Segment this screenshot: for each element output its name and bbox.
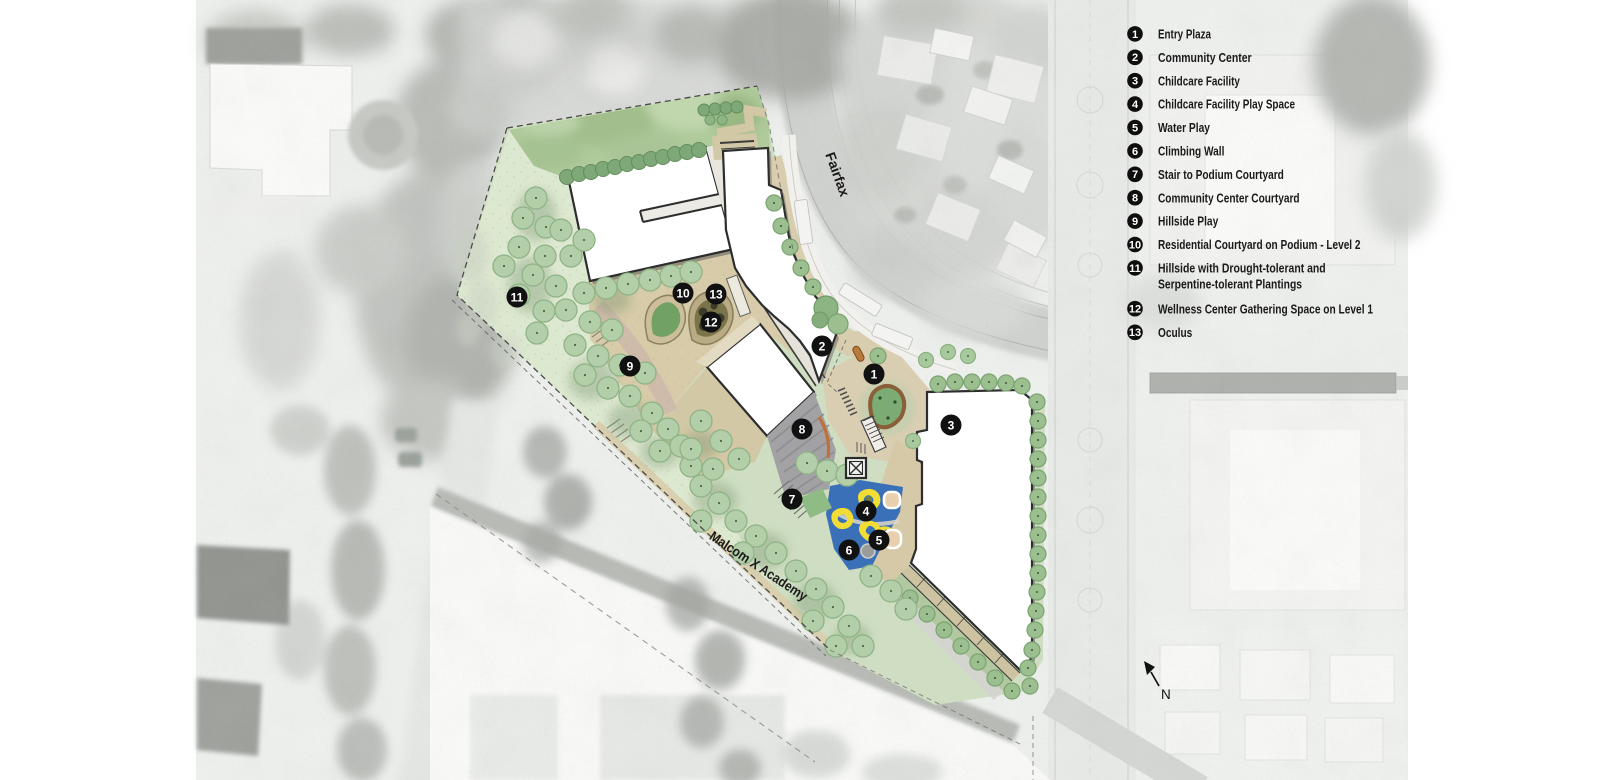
svg-text:7: 7 (1132, 169, 1138, 181)
svg-text:4: 4 (863, 505, 870, 519)
svg-text:10: 10 (676, 287, 690, 301)
svg-text:Residential Courtyard on Podiu: Residential Courtyard on Podium - Level … (1158, 237, 1361, 252)
svg-text:12: 12 (704, 316, 718, 330)
svg-text:9: 9 (627, 360, 634, 374)
svg-text:6: 6 (846, 544, 853, 558)
svg-text:1: 1 (1132, 29, 1138, 41)
svg-text:10: 10 (1129, 239, 1141, 251)
svg-text:Community Center: Community Center (1158, 50, 1252, 65)
svg-text:Childcare Facility: Childcare Facility (1158, 73, 1241, 88)
svg-text:Serpentine-tolerant Plantings: Serpentine-tolerant Plantings (1158, 277, 1302, 292)
svg-text:13: 13 (1129, 327, 1141, 339)
svg-text:2: 2 (1132, 52, 1138, 64)
svg-text:Oculus: Oculus (1158, 325, 1192, 340)
svg-text:Childcare Facility Play Space: Childcare Facility Play Space (1158, 97, 1295, 112)
svg-text:12: 12 (1129, 304, 1141, 316)
svg-text:Hillside Play: Hillside Play (1158, 214, 1219, 229)
svg-text:2: 2 (819, 340, 826, 354)
svg-text:Wellness Center Gathering Spac: Wellness Center Gathering Space on Level… (1158, 301, 1373, 316)
svg-text:N: N (1161, 687, 1171, 702)
svg-text:8: 8 (1132, 193, 1138, 205)
svg-text:3: 3 (948, 419, 955, 433)
svg-text:6: 6 (1132, 146, 1138, 158)
svg-text:Stair to Podium Courtyard: Stair to Podium Courtyard (1158, 167, 1284, 182)
svg-text:Entry Plaza: Entry Plaza (1158, 27, 1212, 42)
svg-text:4: 4 (1132, 99, 1139, 111)
svg-text:3: 3 (1132, 76, 1138, 88)
svg-text:Climbing Wall: Climbing Wall (1158, 144, 1224, 159)
svg-text:Hillside with Drought-tolerant: Hillside with Drought-tolerant and (1158, 261, 1326, 276)
svg-text:13: 13 (709, 288, 723, 302)
svg-text:5: 5 (876, 534, 883, 548)
svg-text:7: 7 (789, 493, 796, 507)
svg-text:11: 11 (511, 291, 524, 305)
svg-text:9: 9 (1132, 216, 1138, 228)
svg-text:Water Play: Water Play (1158, 120, 1211, 135)
svg-text:8: 8 (799, 423, 806, 437)
svg-text:1: 1 (871, 368, 878, 382)
svg-text:5: 5 (1132, 122, 1138, 134)
svg-text:11: 11 (1129, 263, 1141, 275)
svg-text:Community Center Courtyard: Community Center Courtyard (1158, 190, 1300, 205)
